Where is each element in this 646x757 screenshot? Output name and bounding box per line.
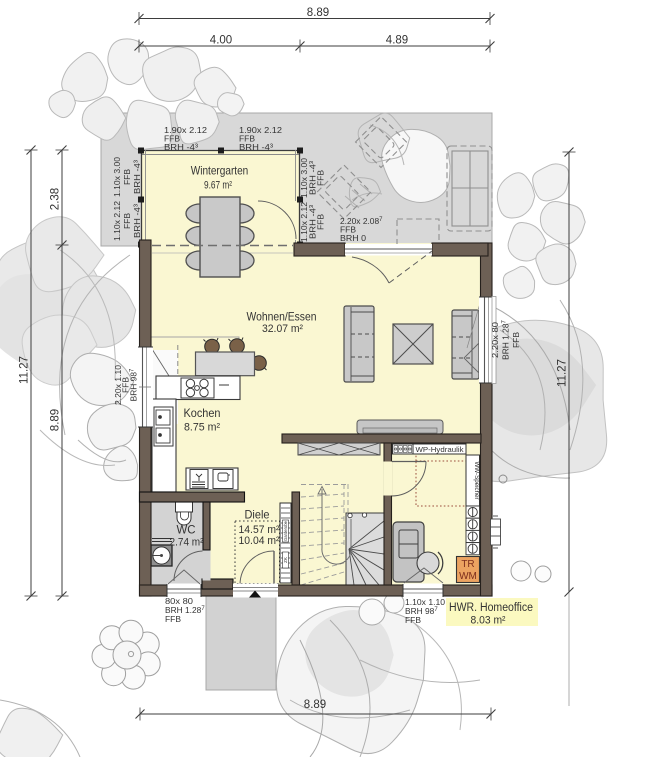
svg-text:BRH -4³: BRH -4³ — [132, 204, 142, 238]
svg-text:1.10x 3.00: 1.10x 3.00 — [112, 157, 122, 197]
svg-text:BRH 987: BRH 987 — [129, 368, 139, 401]
svg-text:2.20x 80: 2.20x 80 — [490, 322, 500, 358]
svg-text:BRH -4³: BRH -4³ — [239, 142, 273, 152]
svg-text:FFB: FFB — [511, 332, 521, 348]
svg-text:32.07 m²: 32.07 m² — [262, 323, 303, 335]
svg-text:FFB: FFB — [122, 213, 132, 229]
svg-text:TR: TR — [461, 559, 474, 570]
svg-text:Diele: Diele — [245, 508, 270, 522]
svg-text:Wohnen/Essen: Wohnen/Essen — [247, 310, 317, 324]
svg-text:FFB: FFB — [165, 614, 181, 624]
svg-text:BRH -4³: BRH -4³ — [132, 160, 142, 194]
svg-text:BRH -4³: BRH -4³ — [164, 142, 198, 152]
svg-text:ZK: ZK — [283, 557, 288, 563]
svg-text:FFB: FFB — [122, 169, 132, 185]
svg-text:Wintergarten: Wintergarten — [191, 164, 249, 178]
svg-text:Garderobe: Garderobe — [283, 520, 288, 541]
svg-text:2.74 m²: 2.74 m² — [170, 537, 204, 549]
svg-text:FFB: FFB — [405, 615, 421, 625]
svg-text:WC: WC — [177, 523, 196, 537]
svg-text:HWR. Homeoffice: HWR. Homeoffice — [449, 602, 533, 614]
svg-text:11.27: 11.27 — [557, 359, 569, 387]
svg-text:Kochen: Kochen — [184, 406, 221, 420]
svg-text:2.38: 2.38 — [50, 188, 62, 210]
svg-text:WP-Hydraulik: WP-Hydraulik — [416, 445, 464, 454]
svg-text:9.67 m²: 9.67 m² — [204, 180, 232, 192]
svg-text:WM: WM — [459, 571, 477, 582]
svg-text:FFB: FFB — [316, 214, 326, 230]
svg-text:8.89: 8.89 — [307, 7, 329, 19]
svg-text:8.75 m²: 8.75 m² — [184, 422, 220, 434]
svg-text:10.04 m²: 10.04 m² — [239, 535, 280, 547]
svg-text:WW-Speicher: WW-Speicher — [473, 461, 480, 499]
svg-text:8.03 m²: 8.03 m² — [471, 615, 506, 627]
svg-text:1.10x 2.12: 1.10x 2.12 — [112, 201, 122, 241]
svg-text:8.89: 8.89 — [304, 699, 326, 711]
svg-text:4.89: 4.89 — [386, 35, 408, 47]
svg-text:4.00: 4.00 — [210, 35, 232, 47]
svg-text:11.27: 11.27 — [19, 356, 31, 384]
svg-text:BRH 1.287: BRH 1.287 — [501, 320, 511, 360]
svg-text:BRH 0: BRH 0 — [340, 233, 366, 243]
svg-text:8.89: 8.89 — [50, 409, 62, 431]
svg-text:FFB: FFB — [316, 170, 326, 186]
